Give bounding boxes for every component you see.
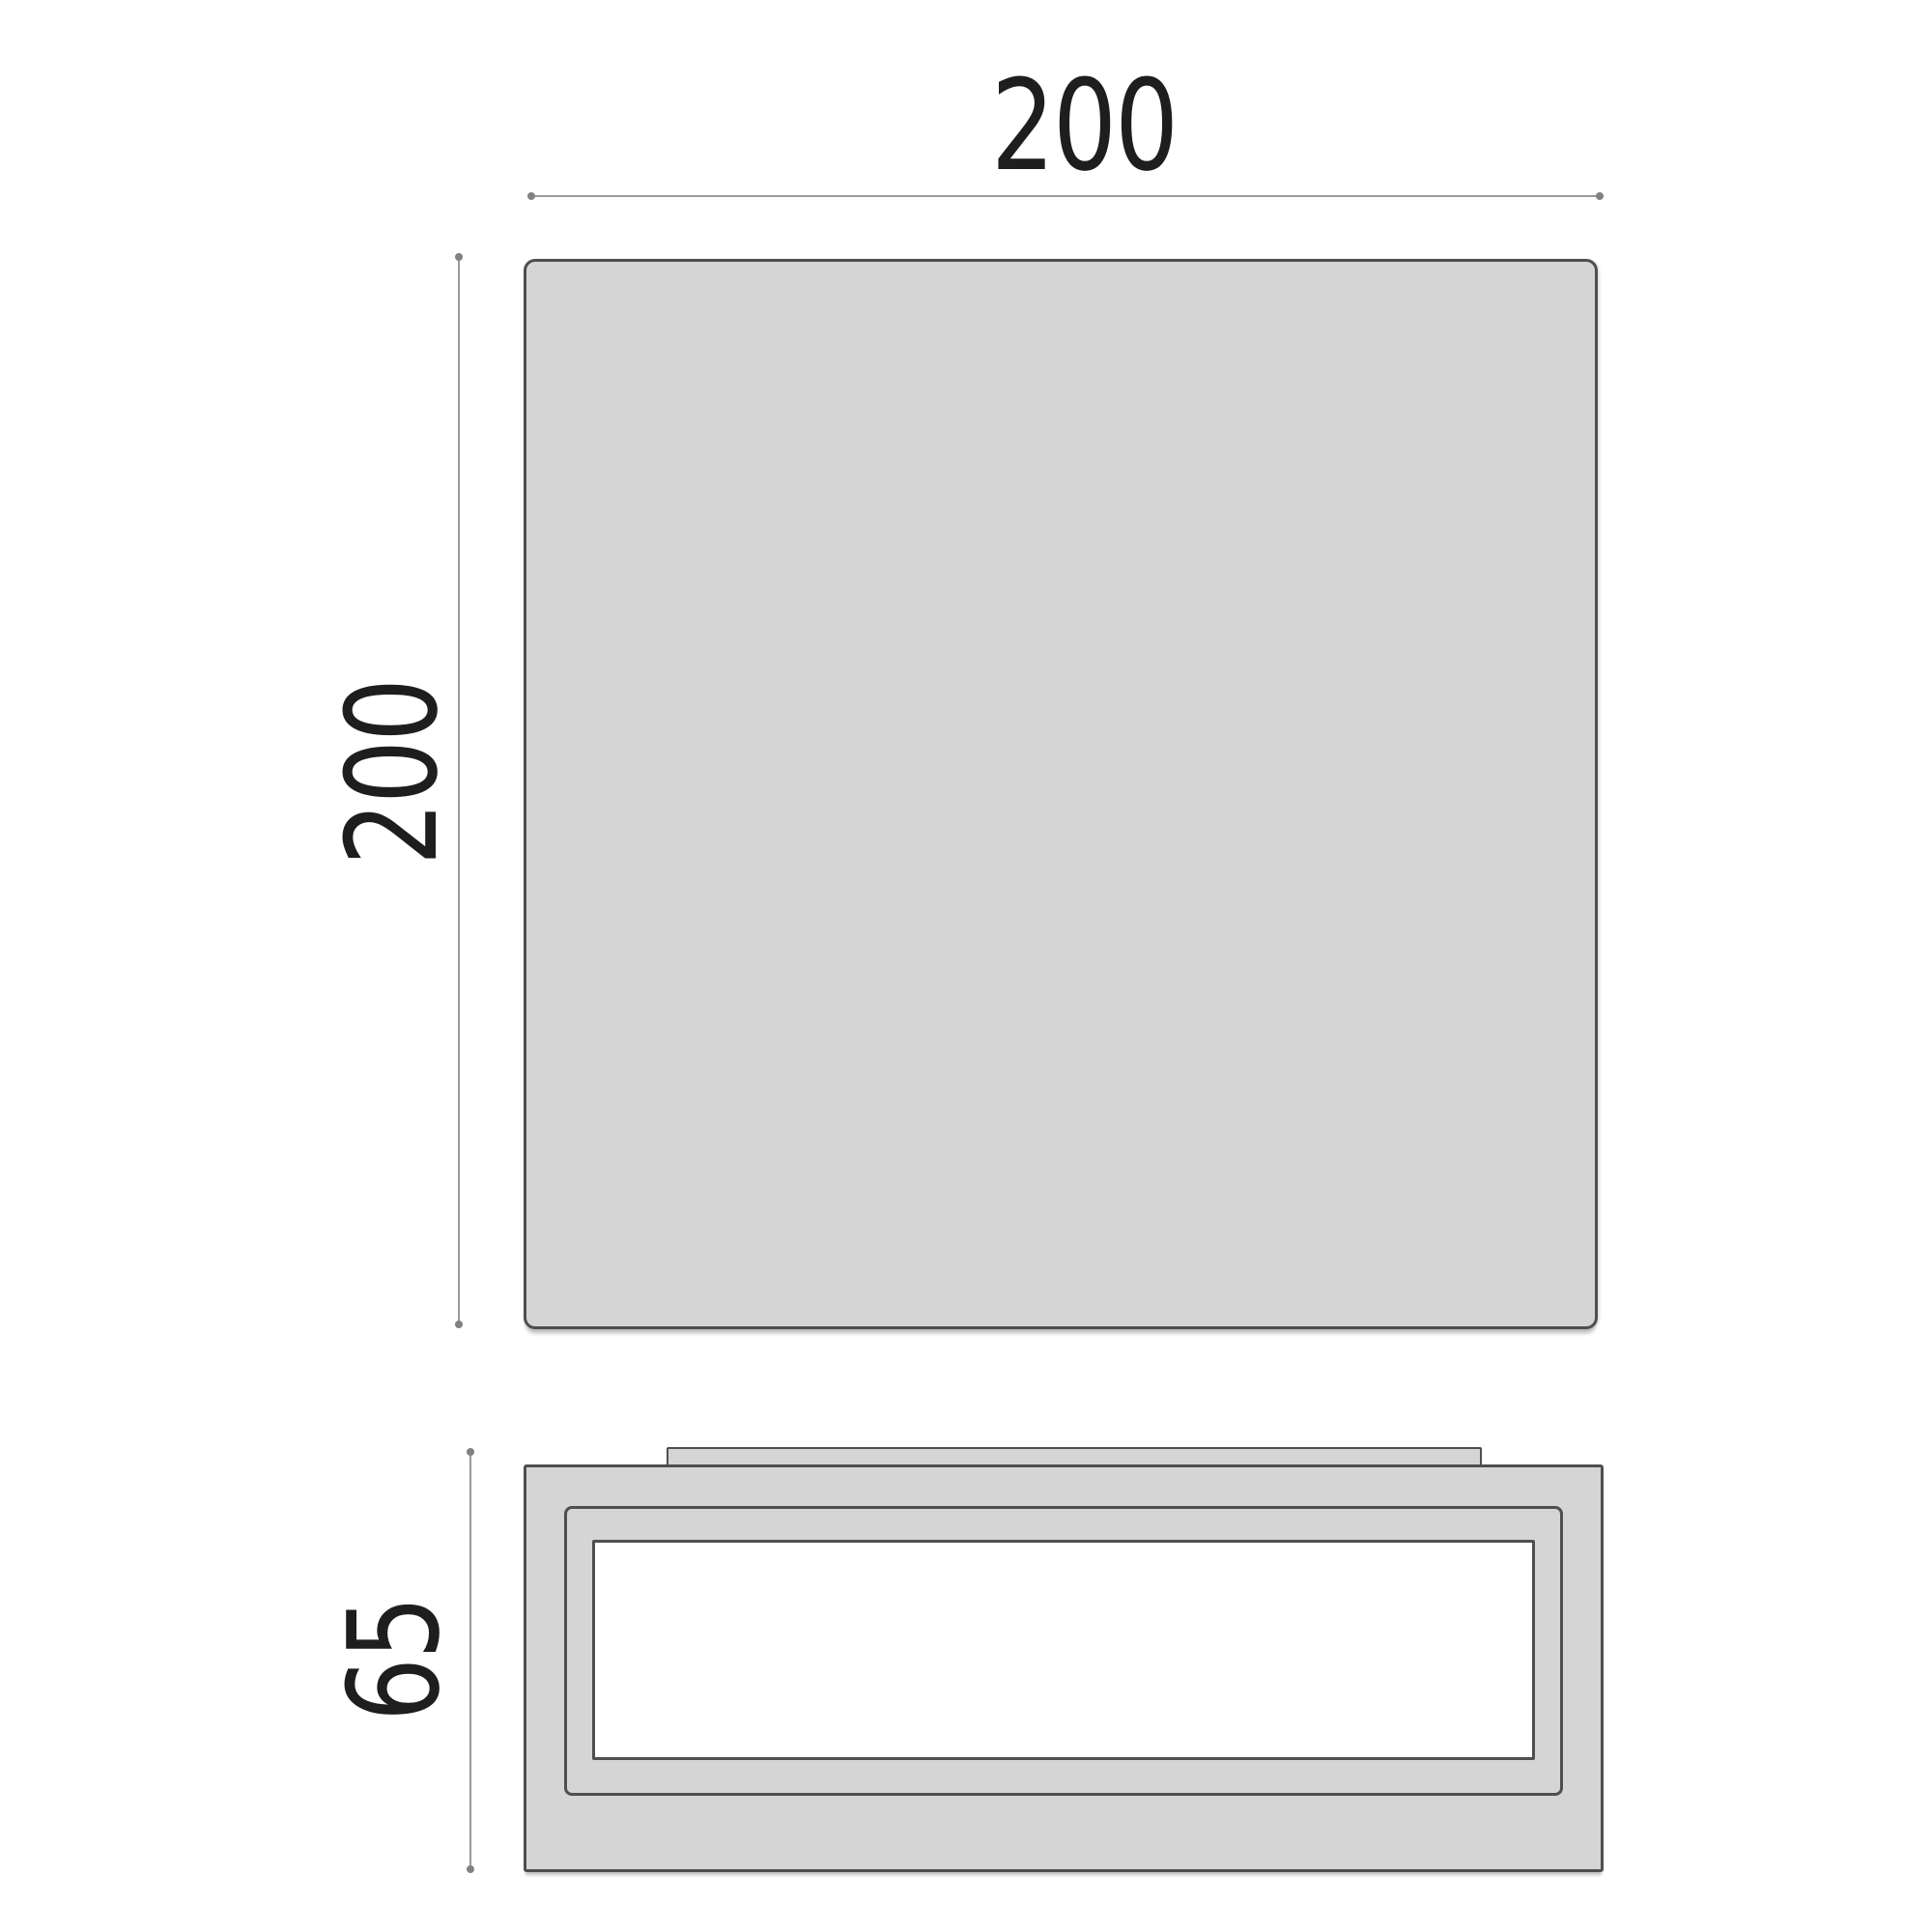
side-height-dim-line: [469, 1452, 471, 1869]
top-height-dim-label: 200: [329, 680, 455, 866]
side-view-diffuser-panel: [592, 1540, 1535, 1760]
side-height-dim-label: 65: [331, 1598, 457, 1721]
top-width-dim-label: 200: [991, 63, 1177, 188]
top-height-dim-line: [458, 257, 460, 1324]
dimension-drawing: 200 200 65: [0, 0, 1932, 1932]
top-width-dim-line: [531, 195, 1600, 197]
top-view-panel: [524, 259, 1598, 1329]
